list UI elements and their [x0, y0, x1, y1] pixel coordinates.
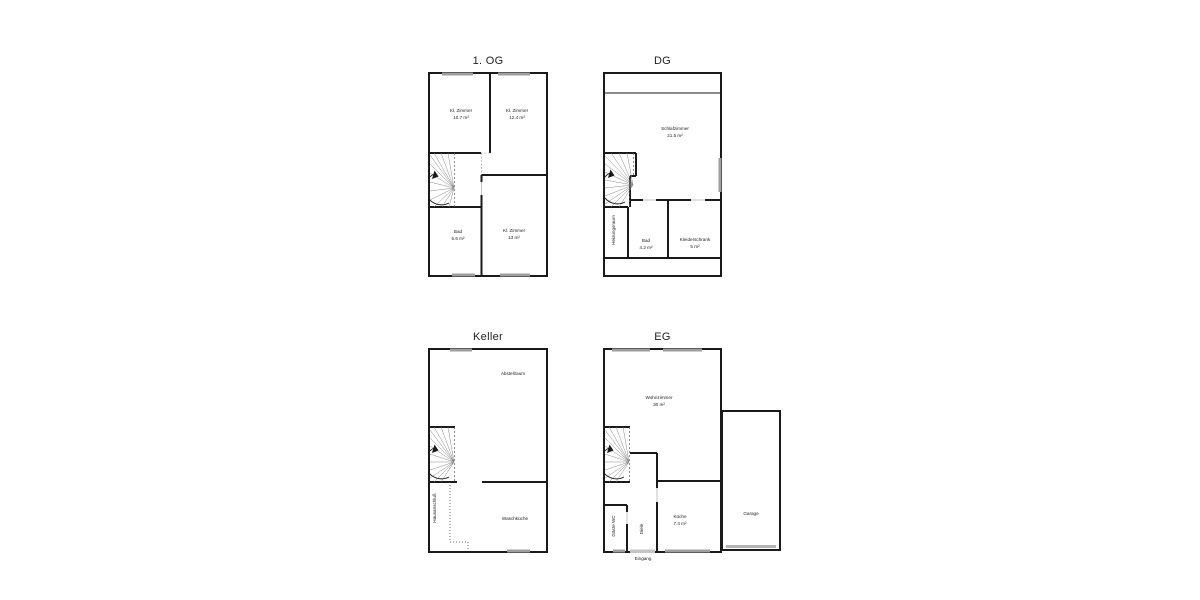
room-label-waschkueche: Waschküche	[502, 516, 529, 521]
floor-plan-1og: Kl. Zimmer 10.7 m² Kl. Zimmer 12.4 m² Ba…	[428, 72, 548, 277]
room-label-schlafzimmer: Schlafzimmer 21.5 m²	[661, 126, 689, 138]
floor-plan-keller: Abstellraum Waschküche Hausanschluß	[428, 348, 548, 553]
room-label-hausanschluss: Hausanschluß	[432, 493, 437, 523]
room-label-kl-zimmer-1: Kl. Zimmer 10.7 m²	[450, 108, 473, 120]
room-label-garage: Garage	[743, 511, 759, 516]
stairs-icon	[428, 153, 455, 207]
title-dg: DG	[603, 55, 722, 67]
svg-text:Bad: Bad	[642, 238, 651, 243]
room-label-diele: Diele	[639, 523, 644, 534]
svg-text:12.4 m²: 12.4 m²	[509, 115, 525, 120]
floor-plan-sheet: 1. OG DG Keller EG	[0, 0, 1200, 600]
room-label-kleiderschrank: Kleiderschrank 5 m²	[680, 237, 711, 249]
svg-text:21.5 m²: 21.5 m²	[667, 133, 683, 138]
room-label-wohnzimmer: Wohnzimmer 30 m²	[646, 395, 673, 407]
svg-text:Kl. Zimmer: Kl. Zimmer	[450, 108, 473, 113]
room-label-bad-dg: Bad 4.2 m²	[639, 238, 652, 250]
service-line	[450, 482, 468, 551]
svg-text:Kl. Zimmer: Kl. Zimmer	[506, 108, 529, 113]
svg-text:4.2 m²: 4.2 m²	[639, 245, 652, 250]
room-label-kl-zimmer-2: Kl. Zimmer 12.4 m²	[506, 108, 529, 120]
svg-text:Bad: Bad	[454, 229, 463, 234]
room-label-kueche: Küche 7.4 m²	[673, 514, 686, 526]
floor-plan-dg: Schlafzimmer 21.5 m² Heizungsraum Bad 4.…	[603, 72, 722, 277]
svg-text:5 m²: 5 m²	[690, 244, 700, 249]
floor-plan-eg: Wohnzimmer 30 m² Küche 7.4 m² Garage Gäs…	[603, 348, 785, 563]
label-eingang: Eingang	[635, 556, 652, 561]
walls-keller	[429, 349, 547, 552]
stairs-icon	[603, 153, 634, 207]
windows-keller	[450, 349, 530, 553]
svg-text:13 m²: 13 m²	[508, 235, 520, 240]
svg-text:30 m²: 30 m²	[653, 402, 665, 407]
garage-door	[726, 545, 776, 548]
walls-1og	[429, 73, 547, 276]
title-1og: 1. OG	[428, 55, 548, 67]
door-openings-eg	[627, 488, 657, 524]
svg-text:Kl. Zimmer: Kl. Zimmer	[503, 228, 526, 233]
room-label-abstellraum: Abstellraum	[501, 371, 525, 376]
svg-text:Küche: Küche	[673, 514, 686, 519]
svg-text:5.6 m²: 5.6 m²	[451, 236, 464, 241]
room-label-gaeste-wc: Gäste WC	[611, 515, 616, 537]
title-eg: EG	[603, 331, 722, 343]
stairs-icon	[428, 427, 455, 482]
title-keller: Keller	[428, 331, 548, 343]
room-label-heizungsraum: Heizungsraum	[611, 215, 616, 245]
walls-dg	[604, 73, 721, 276]
stairs-icon	[603, 427, 630, 482]
room-label-bad-og: Bad 5.6 m²	[451, 229, 464, 241]
entrance-door	[630, 550, 655, 554]
svg-text:Kleiderschrank: Kleiderschrank	[680, 237, 711, 242]
svg-text:10.7 m²: 10.7 m²	[453, 115, 469, 120]
room-label-kl-zimmer-3: Kl. Zimmer 13 m²	[503, 228, 526, 240]
svg-text:Wohnzimmer: Wohnzimmer	[646, 395, 673, 400]
window-right	[719, 158, 722, 192]
walls-eg	[604, 349, 780, 552]
svg-text:Schlafzimmer: Schlafzimmer	[661, 126, 689, 131]
svg-text:7.4 m²: 7.4 m²	[673, 521, 686, 526]
